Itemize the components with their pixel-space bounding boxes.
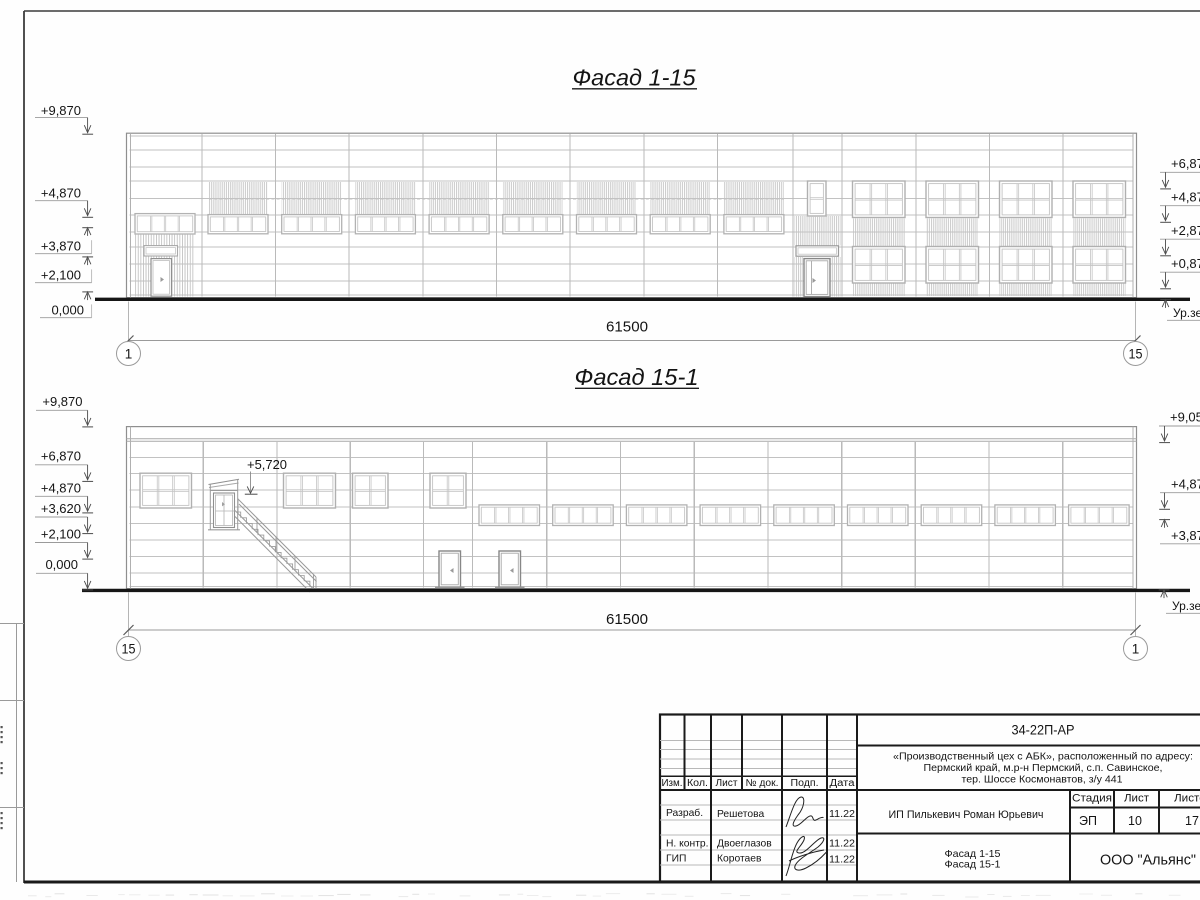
svg-text:+3,870: +3,870 bbox=[1171, 528, 1200, 543]
svg-text:Разраб.: Разраб. bbox=[666, 807, 703, 819]
svg-text:1: 1 bbox=[1132, 641, 1140, 656]
svg-text:11.22: 11.22 bbox=[829, 808, 855, 820]
svg-text:№ док.: № док. bbox=[746, 778, 779, 789]
svg-text:+4,870: +4,870 bbox=[41, 481, 81, 496]
svg-text:Фасад 1-15: Фасад 1-15 bbox=[573, 65, 697, 91]
svg-text:+4,870: +4,870 bbox=[1171, 190, 1200, 205]
svg-text:Решетова: Решетова bbox=[717, 809, 764, 820]
svg-text:0,000: 0,000 bbox=[51, 303, 84, 318]
svg-text:61500: 61500 bbox=[606, 611, 648, 628]
svg-text:ЭП: ЭП bbox=[1079, 814, 1097, 828]
svg-text:17: 17 bbox=[1185, 814, 1199, 828]
svg-text:+4,870: +4,870 bbox=[41, 186, 81, 201]
svg-text:+2,100: +2,100 bbox=[41, 527, 81, 542]
svg-text:тер. Шоссе Космонавтов, з/у 44: тер. Шоссе Космонавтов, з/у 441 bbox=[962, 774, 1123, 785]
svg-text:+9,050: +9,050 bbox=[1170, 410, 1200, 425]
svg-text:11.22: 11.22 bbox=[829, 838, 855, 850]
svg-text:+2,100: +2,100 bbox=[41, 268, 81, 283]
svg-text:+3,620: +3,620 bbox=[41, 501, 81, 516]
svg-text:+3,870: +3,870 bbox=[41, 239, 81, 254]
svg-text:+4,870: +4,870 bbox=[1171, 477, 1200, 492]
svg-text:Лист: Лист bbox=[716, 778, 738, 789]
svg-text:Дата: Дата bbox=[830, 778, 855, 789]
svg-text:Фасад 15-1: Фасад 15-1 bbox=[945, 860, 1001, 871]
svg-text:+9,870: +9,870 bbox=[41, 103, 81, 118]
svg-text:Двоеглазов: Двоеглазов bbox=[717, 839, 772, 850]
svg-text:34-22П-АР: 34-22П-АР bbox=[1012, 723, 1075, 738]
svg-text:Стадия: Стадия bbox=[1072, 793, 1112, 805]
svg-text:Ур.земли: Ур.земли bbox=[1172, 599, 1200, 613]
svg-text:Ур.земли: Ур.земли bbox=[1173, 306, 1200, 320]
svg-text:Коротаев: Коротаев bbox=[717, 854, 762, 865]
svg-text:+9,870: +9,870 bbox=[42, 394, 82, 409]
svg-text:Листов: Листов bbox=[1174, 793, 1200, 805]
svg-text:15: 15 bbox=[1129, 346, 1143, 361]
svg-text:«Производственный цех с АБК»,: «Производственный цех с АБК», расположен… bbox=[893, 752, 1193, 763]
svg-text:+6,870: +6,870 bbox=[41, 449, 81, 464]
svg-text:11.22: 11.22 bbox=[829, 854, 855, 866]
svg-text:Кол.: Кол. bbox=[687, 778, 708, 789]
svg-text:15: 15 bbox=[122, 641, 136, 656]
svg-text:Изм.: Изм. bbox=[662, 778, 683, 789]
svg-text:+2,870: +2,870 bbox=[1171, 223, 1200, 238]
svg-text:Подп.: Подп. bbox=[791, 778, 819, 789]
svg-text:Н. контр.: Н. контр. bbox=[666, 839, 709, 850]
svg-text:1: 1 bbox=[125, 346, 133, 361]
svg-text:Пермский край, м.р-н Пермский,: Пермский край, м.р-н Пермский, с.п. Сави… bbox=[924, 763, 1163, 774]
svg-text:Фасад 15-1: Фасад 15-1 bbox=[575, 364, 699, 390]
svg-text:61500: 61500 bbox=[606, 319, 648, 336]
svg-text:Лист: Лист bbox=[1124, 793, 1149, 805]
svg-text:0,000: 0,000 bbox=[45, 557, 78, 572]
svg-text:10: 10 bbox=[1128, 814, 1142, 828]
svg-text:+6,870: +6,870 bbox=[1171, 156, 1200, 171]
svg-text:Фасад 1-15: Фасад 1-15 bbox=[945, 849, 1001, 860]
svg-text:ООО "Альянс": ООО "Альянс" bbox=[1100, 852, 1196, 869]
svg-text:+5,720: +5,720 bbox=[247, 457, 287, 472]
svg-text:ИП Пилькевич Роман Юрьевич: ИП Пилькевич Роман Юрьевич bbox=[889, 809, 1044, 821]
svg-text:ГИП: ГИП bbox=[666, 854, 686, 865]
svg-text:+0,870: +0,870 bbox=[1171, 256, 1200, 271]
